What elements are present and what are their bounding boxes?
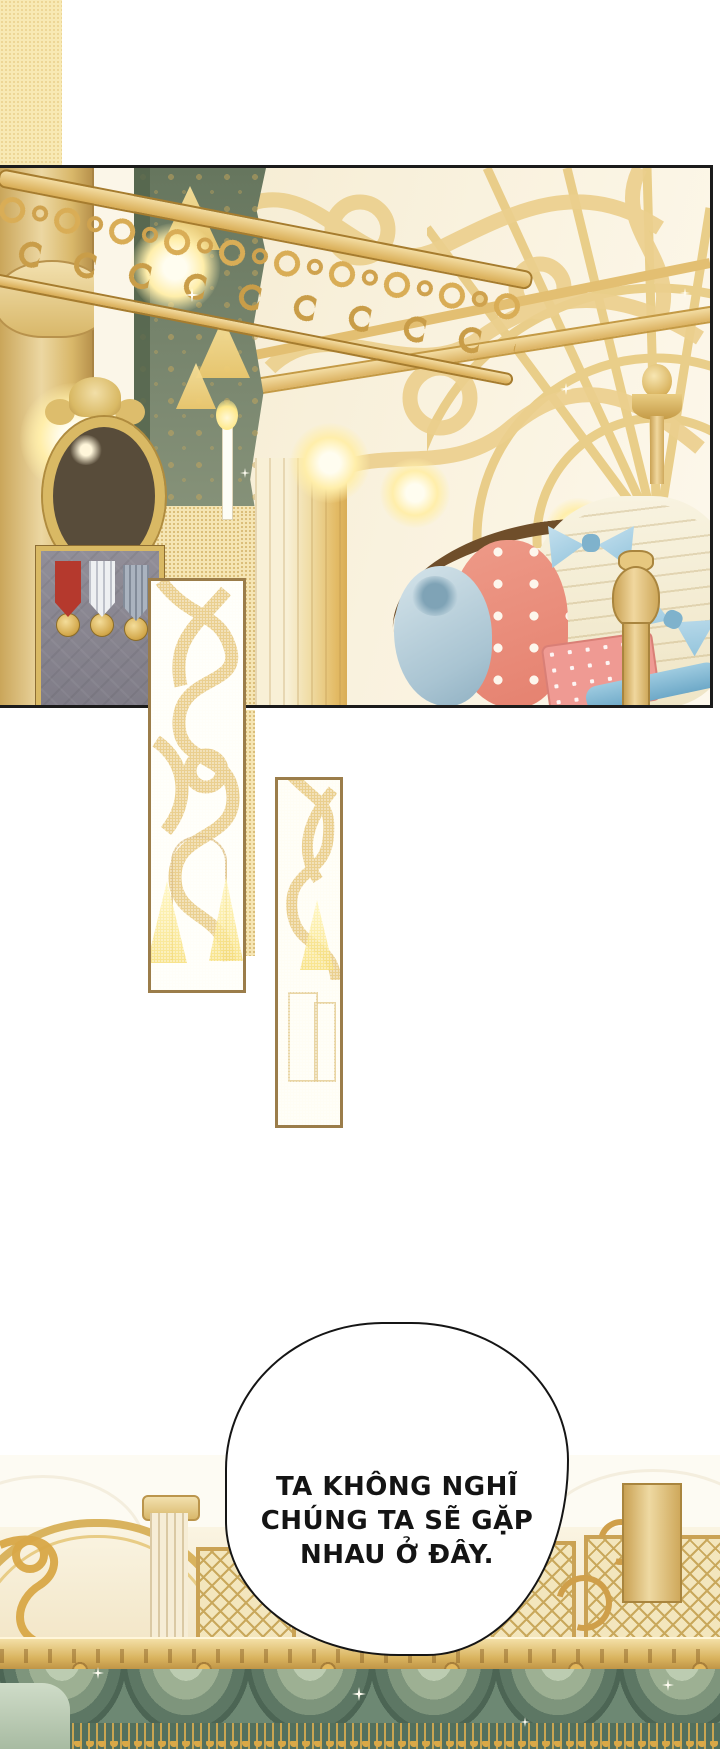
halftone-gold-block (148, 506, 255, 582)
baluster-stem (622, 622, 650, 708)
gilded-mirror (35, 383, 155, 561)
baluster-bulge (612, 566, 660, 628)
decor-strip-right (275, 777, 343, 1128)
bow-knot (582, 534, 600, 552)
decor-strip-left (148, 578, 246, 993)
mirror-glint (69, 435, 103, 465)
speech-text-line-3: NHAU Ở ĐÂY. (227, 1538, 567, 1572)
speech-text: TA KHÔNG NGHĨ CHÚNG TA SẼ GẶP NHAU Ở ĐÂY… (227, 1470, 567, 1572)
mirror-crest (69, 377, 121, 417)
speech-text-line-1: TA KHÔNG NGHĨ (227, 1470, 567, 1504)
candle (222, 426, 233, 520)
slate-striped-ribbon (123, 565, 149, 621)
finial-stem (650, 416, 664, 484)
gold-finial (628, 364, 686, 484)
panel-palace-interior (0, 165, 713, 708)
door-sketch (314, 1002, 336, 1082)
speech-text-line-2: CHÚNG TA SẼ GẶP (227, 1504, 567, 1538)
white-striped-ribbon (89, 561, 115, 617)
gold-scallop-trim (0, 1741, 720, 1749)
medal-red-ribbon (55, 561, 81, 637)
comic-page: TA KHÔNG NGHĨ CHÚNG TA SẼ GẶP NHAU Ở ĐÂY… (0, 0, 720, 1749)
bow-wing (548, 526, 584, 568)
medal-slate-ribbon (123, 565, 149, 641)
medal-display-case (36, 546, 164, 708)
gold-pedestal (622, 1483, 682, 1603)
gold-baluster (612, 550, 656, 706)
finial-ball (642, 364, 672, 398)
light-curtain-corner (0, 1683, 70, 1749)
medal-white-ribbon (89, 561, 115, 637)
blue-dress (394, 566, 492, 706)
candle-flame (216, 400, 238, 430)
candle-glow (290, 423, 370, 503)
red-ribbon (55, 561, 81, 617)
speech-bubble: TA KHÔNG NGHĨ CHÚNG TA SẼ GẶP NHAU Ở ĐÂY… (225, 1322, 569, 1656)
candle-glow (380, 458, 450, 528)
